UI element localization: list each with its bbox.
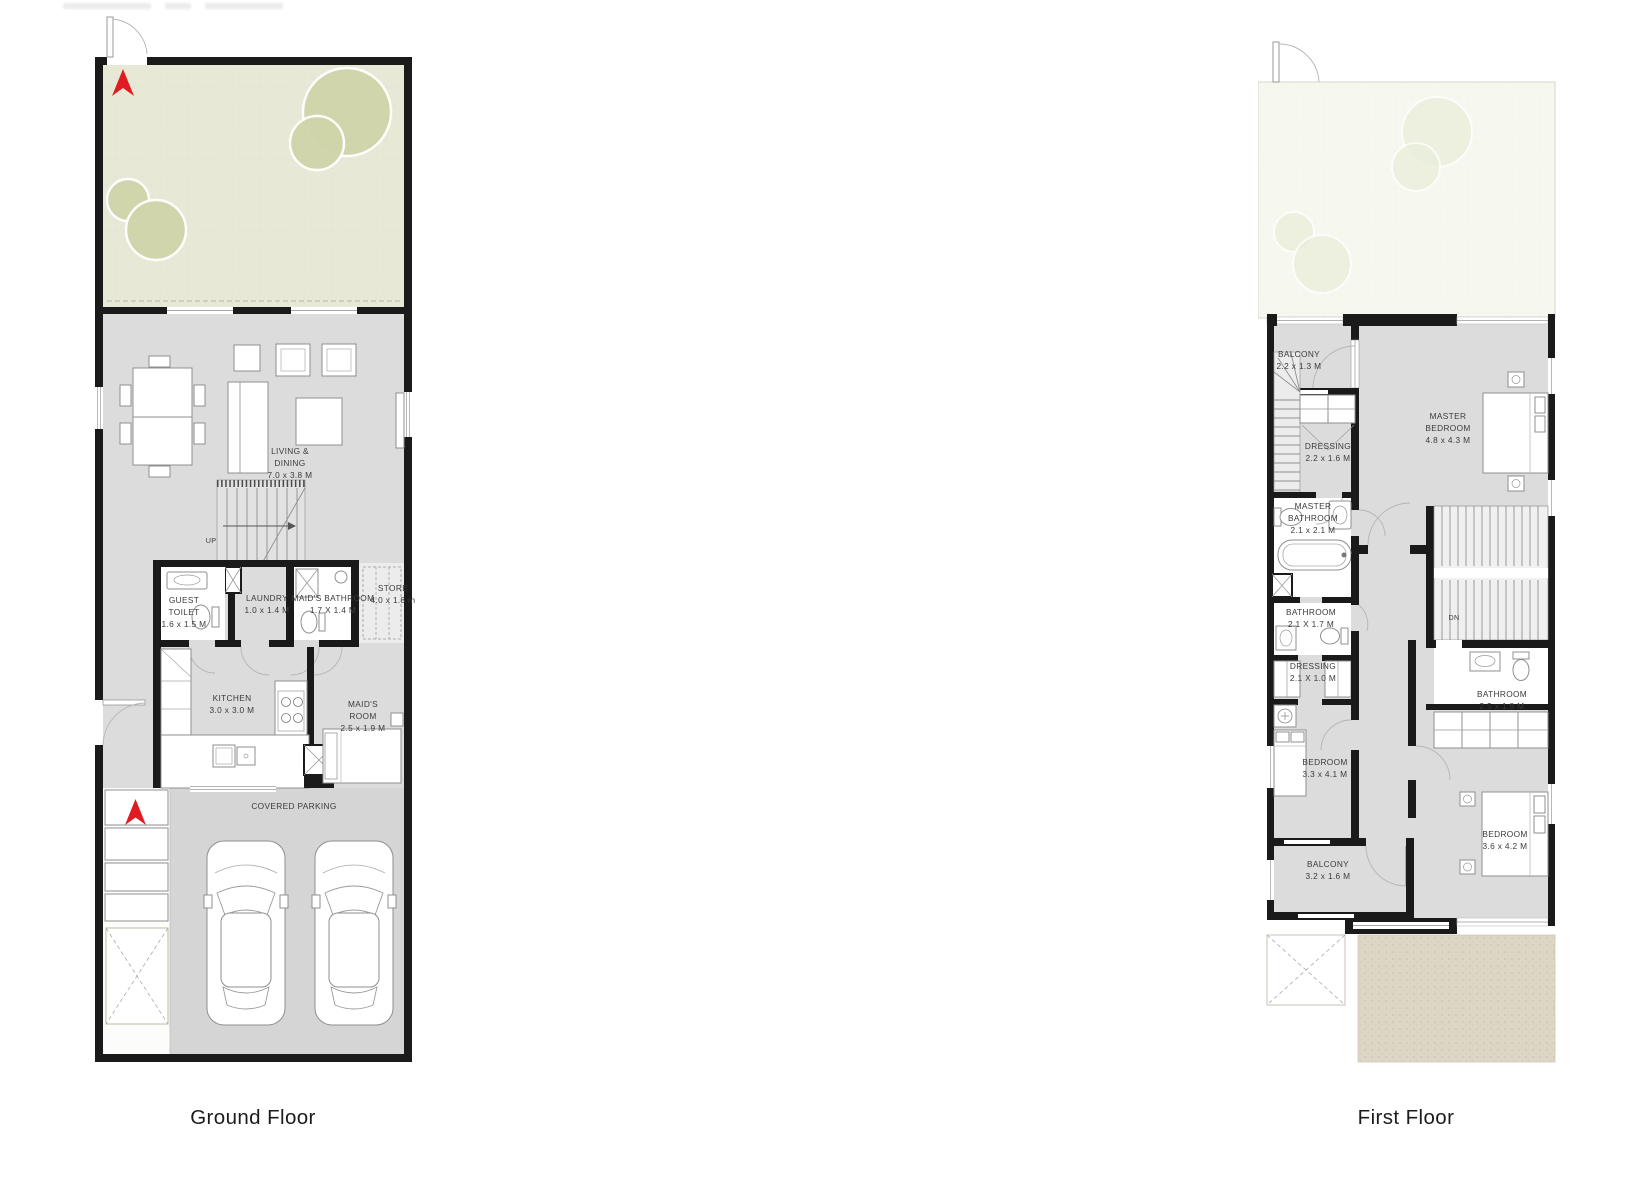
bedroom-3-wardrobe	[1434, 712, 1548, 748]
label-covered-parking: COVERED PARKING	[251, 800, 336, 812]
ground-floor-title: Ground Floor	[190, 1106, 316, 1130]
garden-entry-door-icon	[107, 17, 147, 57]
label-kitchen: KITCHEN 3.0 x 3.0 M	[210, 692, 255, 716]
label-up: UP	[206, 536, 217, 546]
armchair	[322, 344, 356, 376]
sofa	[228, 382, 268, 473]
duct-shaft-icon	[1272, 574, 1292, 597]
tree-icon	[126, 200, 186, 260]
label-dn: DN	[1449, 613, 1460, 623]
label-bathroom-2: BATHROOM 2.1 X 1.7 M	[1286, 606, 1336, 630]
tree-icon	[290, 116, 344, 170]
side-table	[234, 345, 260, 371]
label-dressing-master: DRESSING 2.2 x 1.6 M	[1305, 440, 1351, 464]
tree-icon	[1293, 235, 1351, 293]
sand-terrace	[1358, 935, 1555, 1062]
car	[312, 841, 396, 1025]
label-guest-toilet: GUEST TOILET 1.6 x 1.5 M	[162, 594, 207, 630]
watermark-mark	[165, 3, 191, 9]
ground-floor-plan	[95, 12, 412, 1062]
tv-unit	[396, 393, 404, 448]
label-bedroom-3: BEDROOM 3.6 x 4.2 M	[1482, 828, 1527, 852]
car	[204, 841, 288, 1025]
coffee-table	[296, 398, 342, 445]
label-maids-room: MAID'S ROOM 2.5 x 1.9 M	[341, 698, 386, 734]
label-laundry: LAUNDRY 1.0 x 1.4 M	[245, 592, 290, 616]
label-balcony-top: BALCONY 2.2 x 1.3 M	[1277, 348, 1322, 372]
window-icon	[190, 784, 276, 792]
stairs-down	[1426, 506, 1548, 646]
label-master-bathroom: MASTER BATHROOM 2.1 x 2.1 M	[1288, 500, 1338, 536]
duct-shaft-icon	[225, 567, 241, 593]
roof-entry-door-icon	[1273, 42, 1319, 82]
stairs-up	[1274, 352, 1300, 492]
label-bathroom-3: BATHROOM 2.5 x 1.8 M	[1477, 688, 1527, 712]
bottom-wall	[1345, 918, 1555, 934]
faded-watermark	[63, 3, 283, 9]
label-dressing-2: DRESSING 2.1 X 1.0 M	[1290, 660, 1336, 684]
nightstand	[1508, 476, 1524, 491]
floorplan-page: LIVING & DINING 7.0 x 3.8 M UP GUEST TOI…	[0, 0, 1640, 1179]
label-bedroom-2: BEDROOM 3.3 x 4.1 M	[1302, 756, 1347, 780]
roof-garden-view	[1258, 82, 1555, 318]
nightstand	[1508, 372, 1524, 387]
first-floor-plan	[1258, 40, 1560, 1065]
stairs-up	[217, 480, 305, 565]
pergola	[106, 928, 168, 1024]
label-master-bedroom: MASTER BEDROOM 4.8 x 4.3 M	[1425, 410, 1470, 446]
pergola	[1267, 935, 1345, 1005]
armchair	[276, 344, 310, 376]
nightstand	[1460, 792, 1475, 806]
dining-table	[120, 356, 205, 477]
watermark-mark	[205, 3, 283, 9]
label-living-dining: LIVING & DINING 7.0 x 3.8 M	[268, 445, 313, 481]
tree-icon	[1392, 143, 1440, 191]
label-store: STORE 4.0 x 1.8 m	[371, 582, 416, 606]
nightstand	[1460, 860, 1475, 874]
watermark-mark	[63, 3, 151, 9]
garden-area	[103, 65, 404, 309]
label-maids-bathroom: MAID'S BATHROOM 1.7 X 1.4 M	[292, 592, 375, 616]
first-floor-title: First Floor	[1358, 1106, 1455, 1130]
label-balcony-bottom: BALCONY 3.2 x 1.6 M	[1306, 858, 1351, 882]
